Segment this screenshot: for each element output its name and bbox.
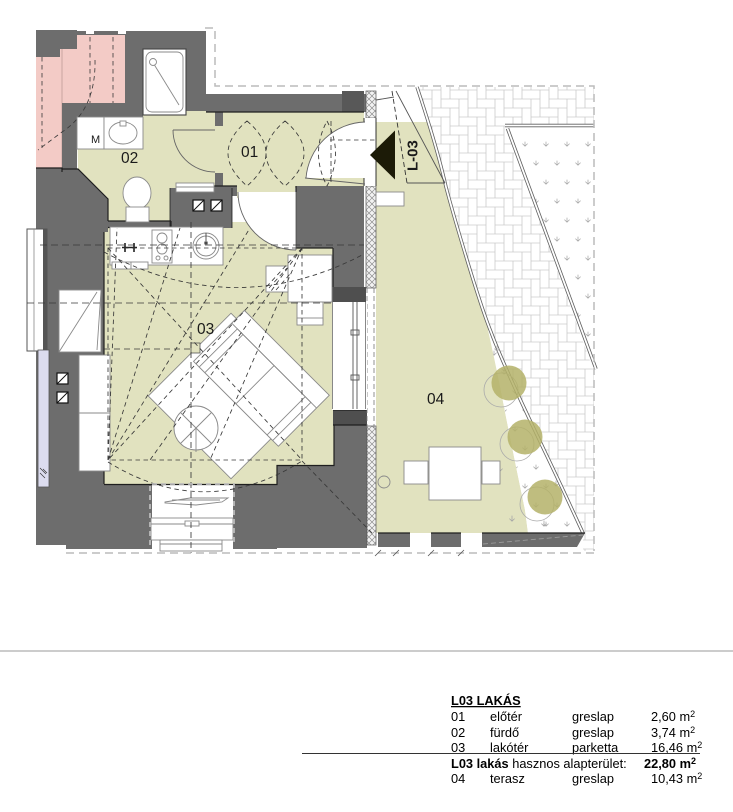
svg-text:M: M [91,134,100,146]
svg-text:terasz: terasz [490,771,525,786]
svg-text:fürdő: fürdő [490,725,519,740]
svg-text:greslap: greslap [572,771,614,786]
svg-text:03: 03 [197,321,214,338]
svg-text:lakótér: lakótér [490,740,529,755]
svg-text:greslap: greslap [572,725,614,740]
svg-text:3,74 m2: 3,74 m2 [651,725,695,740]
svg-text:02: 02 [451,725,465,740]
svg-text:22,80 m2: 22,80 m2 [644,756,696,771]
svg-text:01: 01 [241,144,258,161]
svg-text:L03 LAKÁS: L03 LAKÁS [451,693,521,708]
svg-text:16,46 m2: 16,46 m2 [651,740,702,755]
svg-text:L-03: L-03 [405,140,422,171]
svg-text:10,43 m2: 10,43 m2 [651,771,702,786]
svg-text:L03 lakás hasznos alapterület:: L03 lakás hasznos alapterület: [451,756,627,771]
svg-text:parketta: parketta [572,740,619,755]
svg-text:01: 01 [451,709,465,724]
svg-text:04: 04 [451,771,465,786]
svg-text:2,60 m2: 2,60 m2 [651,709,695,724]
svg-text:04: 04 [427,391,445,408]
svg-text:03: 03 [451,740,465,755]
svg-text:greslap: greslap [572,709,614,724]
svg-text:02: 02 [121,150,138,167]
svg-text:előtér: előtér [490,709,523,724]
